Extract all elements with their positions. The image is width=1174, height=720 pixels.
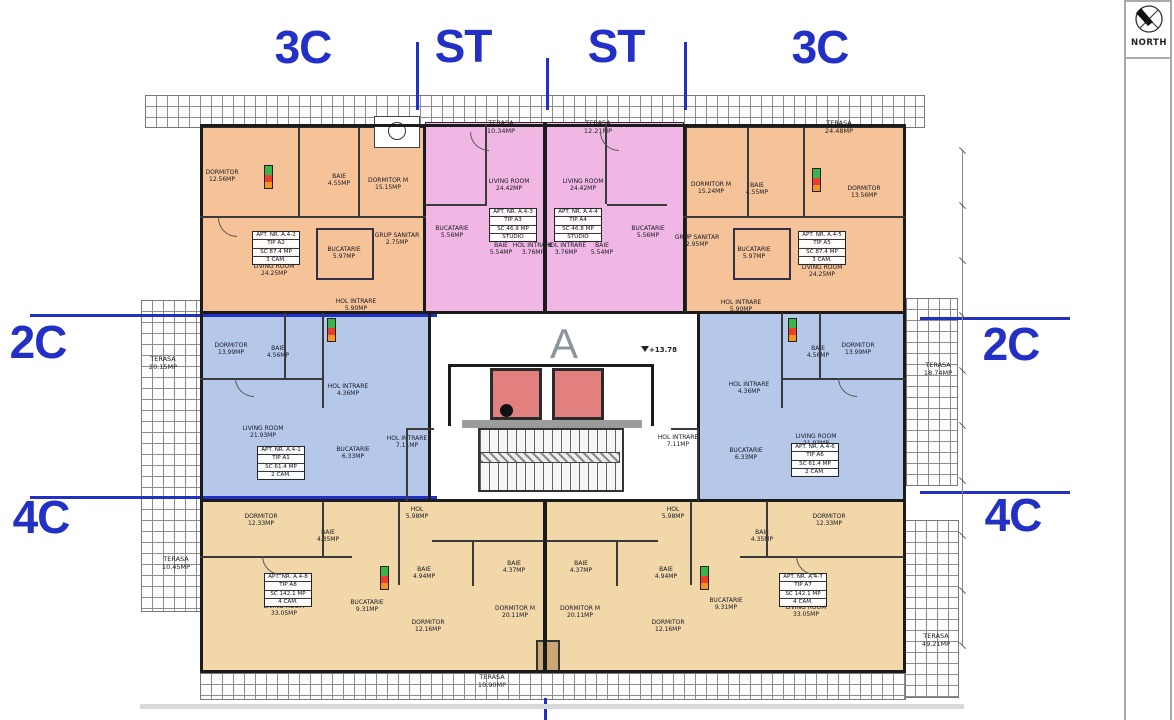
apartment-info-row: 2 CAM. [792, 468, 838, 476]
room-label: BAIE 4.55MP [746, 182, 768, 196]
terrace-label: TERASA 10.45MP [162, 556, 190, 572]
riser-marker [327, 318, 336, 342]
partition-wall [298, 128, 300, 218]
room-label: HOL 5.98MP [406, 506, 428, 520]
apartment-info-row: TIP A2 [253, 239, 299, 247]
apartment-info-row: TIP A5 [799, 239, 845, 247]
partition-wall [781, 313, 783, 408]
room-label: BUCATARIE 5.56MP [435, 225, 468, 239]
room-label: BAIE 4.94MP [655, 566, 677, 580]
terrace-bottom [200, 673, 906, 700]
section-label-st-2: ST [588, 19, 645, 73]
apartment-info-row: SC 61.4 MP [792, 460, 838, 468]
room-label: DORMITOR 13.56MP [847, 185, 880, 199]
section-line-bottom [544, 698, 547, 720]
apartment-info-row: SC 87.4 MP [253, 248, 299, 256]
sheet-border-divider [1124, 57, 1172, 59]
apartment-info-box-a4-4: APT. NR. A.4-4TIP A4SC 46.8 MPSTUDIO [554, 208, 602, 242]
room-label: DORMITOR M 20.11MP [560, 605, 600, 619]
apartment-info-row: APT. NR. A.4-1 [258, 447, 304, 454]
partition-wall [322, 501, 324, 557]
core-section-letter: A [550, 320, 578, 368]
apartment-info-row: APT. NR. A.4-4 [555, 209, 601, 216]
room-label: BAIE 4.94MP [413, 566, 435, 580]
terrace-label: TERASA 49.21MP [922, 633, 950, 649]
partition-wall [690, 501, 692, 585]
sheet-border-right [1170, 0, 1172, 720]
room-label: DORMITOR M 15.15MP [368, 177, 408, 191]
apartment-info-row: APT. NR. A.4-8 [265, 574, 311, 581]
room-label: DORMITOR 12.16MP [651, 619, 684, 633]
wall [543, 499, 547, 673]
partition-wall [683, 216, 905, 218]
kitchen-unit [316, 228, 374, 280]
apartment-info-box-a4-2: APT. NR. A.4-2TIP A2SC 87.4 MP3 CAM. [252, 231, 300, 265]
apartment-info-box-a4-7: APT. NR. A.4-7TIP A7SC 142.1 MP4 CAM. [779, 573, 827, 607]
section-label-4c-7: 4C [985, 488, 1042, 542]
room-label: LIVING ROOM 24.25MP [802, 264, 843, 278]
wall [448, 364, 654, 367]
room-label: HOL INTRARE 4.36MP [328, 383, 368, 397]
apartment-info-row: SC 46.8 MP [555, 225, 601, 233]
level-annotation: +13.78 [649, 346, 677, 354]
terrace-label: TERASA 18.74MP [924, 362, 952, 378]
partition-wall [406, 428, 408, 501]
apartment-info-row: 3 CAM. [253, 256, 299, 264]
kitchen-unit [733, 228, 791, 280]
room-label: BAIE 4.55MP [328, 173, 350, 187]
apartment-info-row: STUDIO [555, 233, 601, 241]
partition-wall [616, 542, 618, 586]
apartment-info-box-a4-5: APT. NR. A.4-5TIP A5SC 87.4 MP3 CAM. [798, 231, 846, 265]
section-label-3c-0: 3C [275, 20, 332, 74]
apartment-info-row: SC 87.4 MP [799, 248, 845, 256]
floor-plan-canvas: A +13.78 NORTH 3CSTST3C2C4C2C4CDORMITOR … [0, 0, 1174, 720]
partition-wall [803, 128, 805, 218]
north-arrow-icon [1130, 4, 1168, 36]
partition-wall [425, 204, 487, 206]
apartment-info-row: SC 46.9 MP [490, 225, 536, 233]
room-label: DORMITOR 13.99MP [214, 342, 247, 356]
room-label: BAIE 4.56MP [807, 345, 829, 359]
apartment-info-row: APT. NR. A.4-5 [799, 232, 845, 239]
terrace-label: TERASA 10.34MP [487, 120, 515, 136]
apartment-info-row: APT. NR. A.4-2 [253, 232, 299, 239]
apartment-info-row: STUDIO [490, 233, 536, 241]
apartment-info-row: SC 142.1 MP [780, 590, 826, 598]
section-label-2c-6: 2C [983, 317, 1040, 371]
partition-wall [284, 313, 286, 378]
wall [543, 122, 547, 314]
room-label: BAIE 4.37MP [503, 560, 525, 574]
apartment-info-row: TIP A8 [265, 581, 311, 589]
terrace-label: TERASA 10.90MP [478, 674, 506, 690]
wall [683, 124, 686, 314]
room-label: LIVING ROOM 24.42MP [563, 178, 604, 192]
riser-marker [700, 566, 709, 590]
riser-marker [788, 318, 797, 342]
apartment-info-row: SC 142.1 MP [265, 590, 311, 598]
sheet-border-left [1124, 0, 1126, 720]
room-label: GRUP SANITAR 2.75MP [375, 232, 420, 246]
room-label: HOL INTRARE 4.36MP [729, 381, 769, 395]
room-label: BAIE 5.54MP [490, 242, 512, 256]
room-label: BAIE 4.37MP [570, 560, 592, 574]
wall [200, 670, 906, 673]
wall [200, 124, 203, 673]
wall [448, 364, 451, 426]
partition-wall [358, 128, 360, 218]
apartment-info-box-a4-6: APT. NR. A.4-6TIP A6SC 61.4 MP2 CAM. [791, 443, 839, 477]
wall [423, 124, 426, 314]
room-label: DORMITOR 13.99MP [841, 342, 874, 356]
section-label-4c-5: 4C [13, 490, 70, 544]
partition-wall [697, 428, 699, 501]
room-label: HOL INTRARE 7.11MP [658, 434, 698, 448]
room-label: DORMITOR 12.33MP [244, 513, 277, 527]
bottom-exit [536, 640, 560, 672]
room-label: BAIE 4.35MP [751, 529, 773, 543]
partition-wall [766, 501, 768, 557]
section-label-3c-3: 3C [792, 20, 849, 74]
apartment-region-4c-right [546, 500, 904, 671]
core-slab [462, 420, 642, 428]
room-label: LIVING ROOM 21.93MP [243, 425, 284, 439]
room-label: DORMITOR M 15.24MP [691, 181, 731, 195]
section-line-left-2c [30, 314, 437, 317]
apartment-info-row: 3 CAM. [799, 256, 845, 264]
apartment-info-row: APT. NR. A.4-7 [780, 574, 826, 581]
north-compass: NORTH [1126, 4, 1172, 48]
level-marker-icon [641, 346, 649, 352]
apartment-info-row: 4 CAM. [780, 598, 826, 606]
apartment-info-row: TIP A4 [555, 216, 601, 224]
wall [200, 124, 906, 127]
room-label: HOL INTRARE 3.76MP [546, 242, 586, 256]
apartment-info-row: TIP A7 [780, 581, 826, 589]
scan-band [140, 704, 964, 709]
riser-marker [264, 165, 273, 189]
apartment-info-row: 4 CAM. [265, 598, 311, 606]
terrace-right-upper [906, 298, 958, 486]
partition-wall [200, 378, 322, 380]
section-line-vertical-1 [416, 42, 419, 110]
room-label: HOL 5.98MP [662, 506, 684, 520]
partition-wall [546, 540, 658, 542]
riser-marker [812, 168, 821, 192]
room-label: DORMITOR 12.33MP [812, 513, 845, 527]
apartment-info-box-a4-3: APT. NR. A.4-3TIP A3SC 46.9 MPSTUDIO [489, 208, 537, 242]
sheet-border-top [1124, 0, 1172, 2]
section-label-st-1: ST [435, 19, 492, 73]
stair-landing [480, 452, 620, 463]
apartment-info-row: TIP A3 [490, 216, 536, 224]
room-label: BUCATARIE 6.33MP [729, 447, 762, 461]
core-dot [500, 404, 513, 417]
elevator-shaft-right [552, 368, 604, 420]
wall [200, 499, 906, 502]
room-label: DORMITOR M 20.11MP [495, 605, 535, 619]
apartment-info-row: APT. NR. A.4-3 [490, 209, 536, 216]
apartment-info-box-a4-1: APT. NR. A.4-1TIP A1SC 61.4 MP2 CAM. [257, 446, 305, 480]
partition-wall [671, 428, 699, 430]
room-label: BUCATARIE 5.56MP [631, 225, 664, 239]
partition-wall [472, 542, 474, 586]
section-label-2c-4: 2C [10, 315, 67, 369]
apartment-info-box-a4-8: APT. NR. A.4-8TIP A8SC 142.1 MP4 CAM. [264, 573, 312, 607]
partition-wall [607, 204, 667, 206]
apartment-info-row: TIP A6 [792, 451, 838, 459]
partition-wall [432, 540, 544, 542]
apartment-region-3c-right [686, 127, 904, 313]
room-label: BUCATARIE 9.31MP [709, 597, 742, 611]
section-line-vertical-2 [546, 58, 549, 110]
wall [200, 311, 906, 314]
partition-wall [819, 313, 821, 378]
room-label: BUCATARIE 9.31MP [350, 599, 383, 613]
room-label: BAIE 5.54MP [591, 242, 613, 256]
riser-marker [380, 566, 389, 590]
room-label: LIVING ROOM 24.42MP [489, 178, 530, 192]
wall [903, 124, 906, 673]
wall [651, 364, 654, 426]
section-line-vertical-3 [684, 42, 687, 110]
apartment-info-row: TIP A1 [258, 454, 304, 462]
partition-wall [322, 313, 324, 408]
room-label: DORMITOR 12.16MP [411, 619, 444, 633]
dimension-line-right [962, 150, 963, 645]
partition-wall [747, 128, 749, 218]
partition-wall [398, 501, 400, 585]
room-label: GRUP SANITAR 2.95MP [675, 234, 720, 248]
partition-wall [406, 428, 434, 430]
apartment-info-row: 2 CAM. [258, 471, 304, 479]
elevator-shaft-left [490, 368, 542, 420]
apartment-info-row: APT. NR. A.4-6 [792, 444, 838, 451]
room-label: DORMITOR 12.56MP [205, 169, 238, 183]
terrace-label: TERASA 24.48MP [825, 120, 853, 136]
wall [428, 311, 431, 502]
room-label: BAIE 4.35MP [317, 529, 339, 543]
north-label: NORTH [1126, 38, 1172, 48]
terrace-label: TERASA 20.15MP [149, 356, 177, 372]
partition-wall [740, 556, 904, 558]
apartment-info-row: SC 61.4 MP [258, 463, 304, 471]
room-label: BUCATARIE 6.33MP [336, 446, 369, 460]
